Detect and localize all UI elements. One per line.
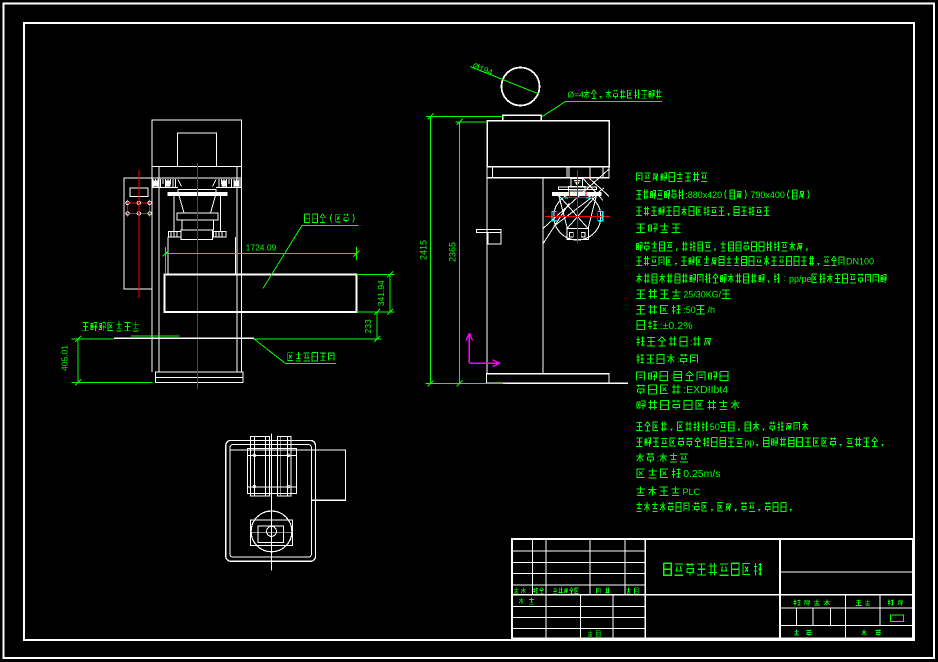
svg-text::±0.2%: :±0.2% [660,320,693,332]
svg-text:DN100: DN100 [846,257,874,267]
svg-text::: : [671,372,674,382]
svg-text::880x420: :880x420 [685,190,722,200]
svg-text:2415: 2415 [419,240,429,260]
svg-text:Ø=4: Ø=4 [568,90,585,100]
svg-text:PLC: PLC [683,487,701,497]
svg-text::50: :50 [683,305,696,315]
svg-text::: : [657,453,660,463]
svg-text:1724.09: 1724.09 [246,243,277,253]
svg-text::: : [691,503,694,513]
svg-text:2365: 2365 [447,242,457,262]
svg-text::: : [677,354,680,364]
svg-text:pp/pe: pp/pe [789,274,812,284]
svg-text:50: 50 [710,422,720,432]
svg-text:25/30KG/: 25/30KG/ [683,290,721,300]
svg-text:790x400: 790x400 [750,190,785,200]
svg-text:/h: /h [708,305,716,315]
svg-text::EXDIIbt4: :EXDIIbt4 [683,384,728,396]
svg-text:405.01: 405.01 [60,345,70,371]
svg-text:341.94: 341.94 [376,280,386,306]
svg-text:233: 233 [363,319,373,333]
svg-text:0.25m/s: 0.25m/s [683,468,720,480]
svg-text::: : [690,337,693,347]
svg-text:pp: pp [745,438,755,448]
